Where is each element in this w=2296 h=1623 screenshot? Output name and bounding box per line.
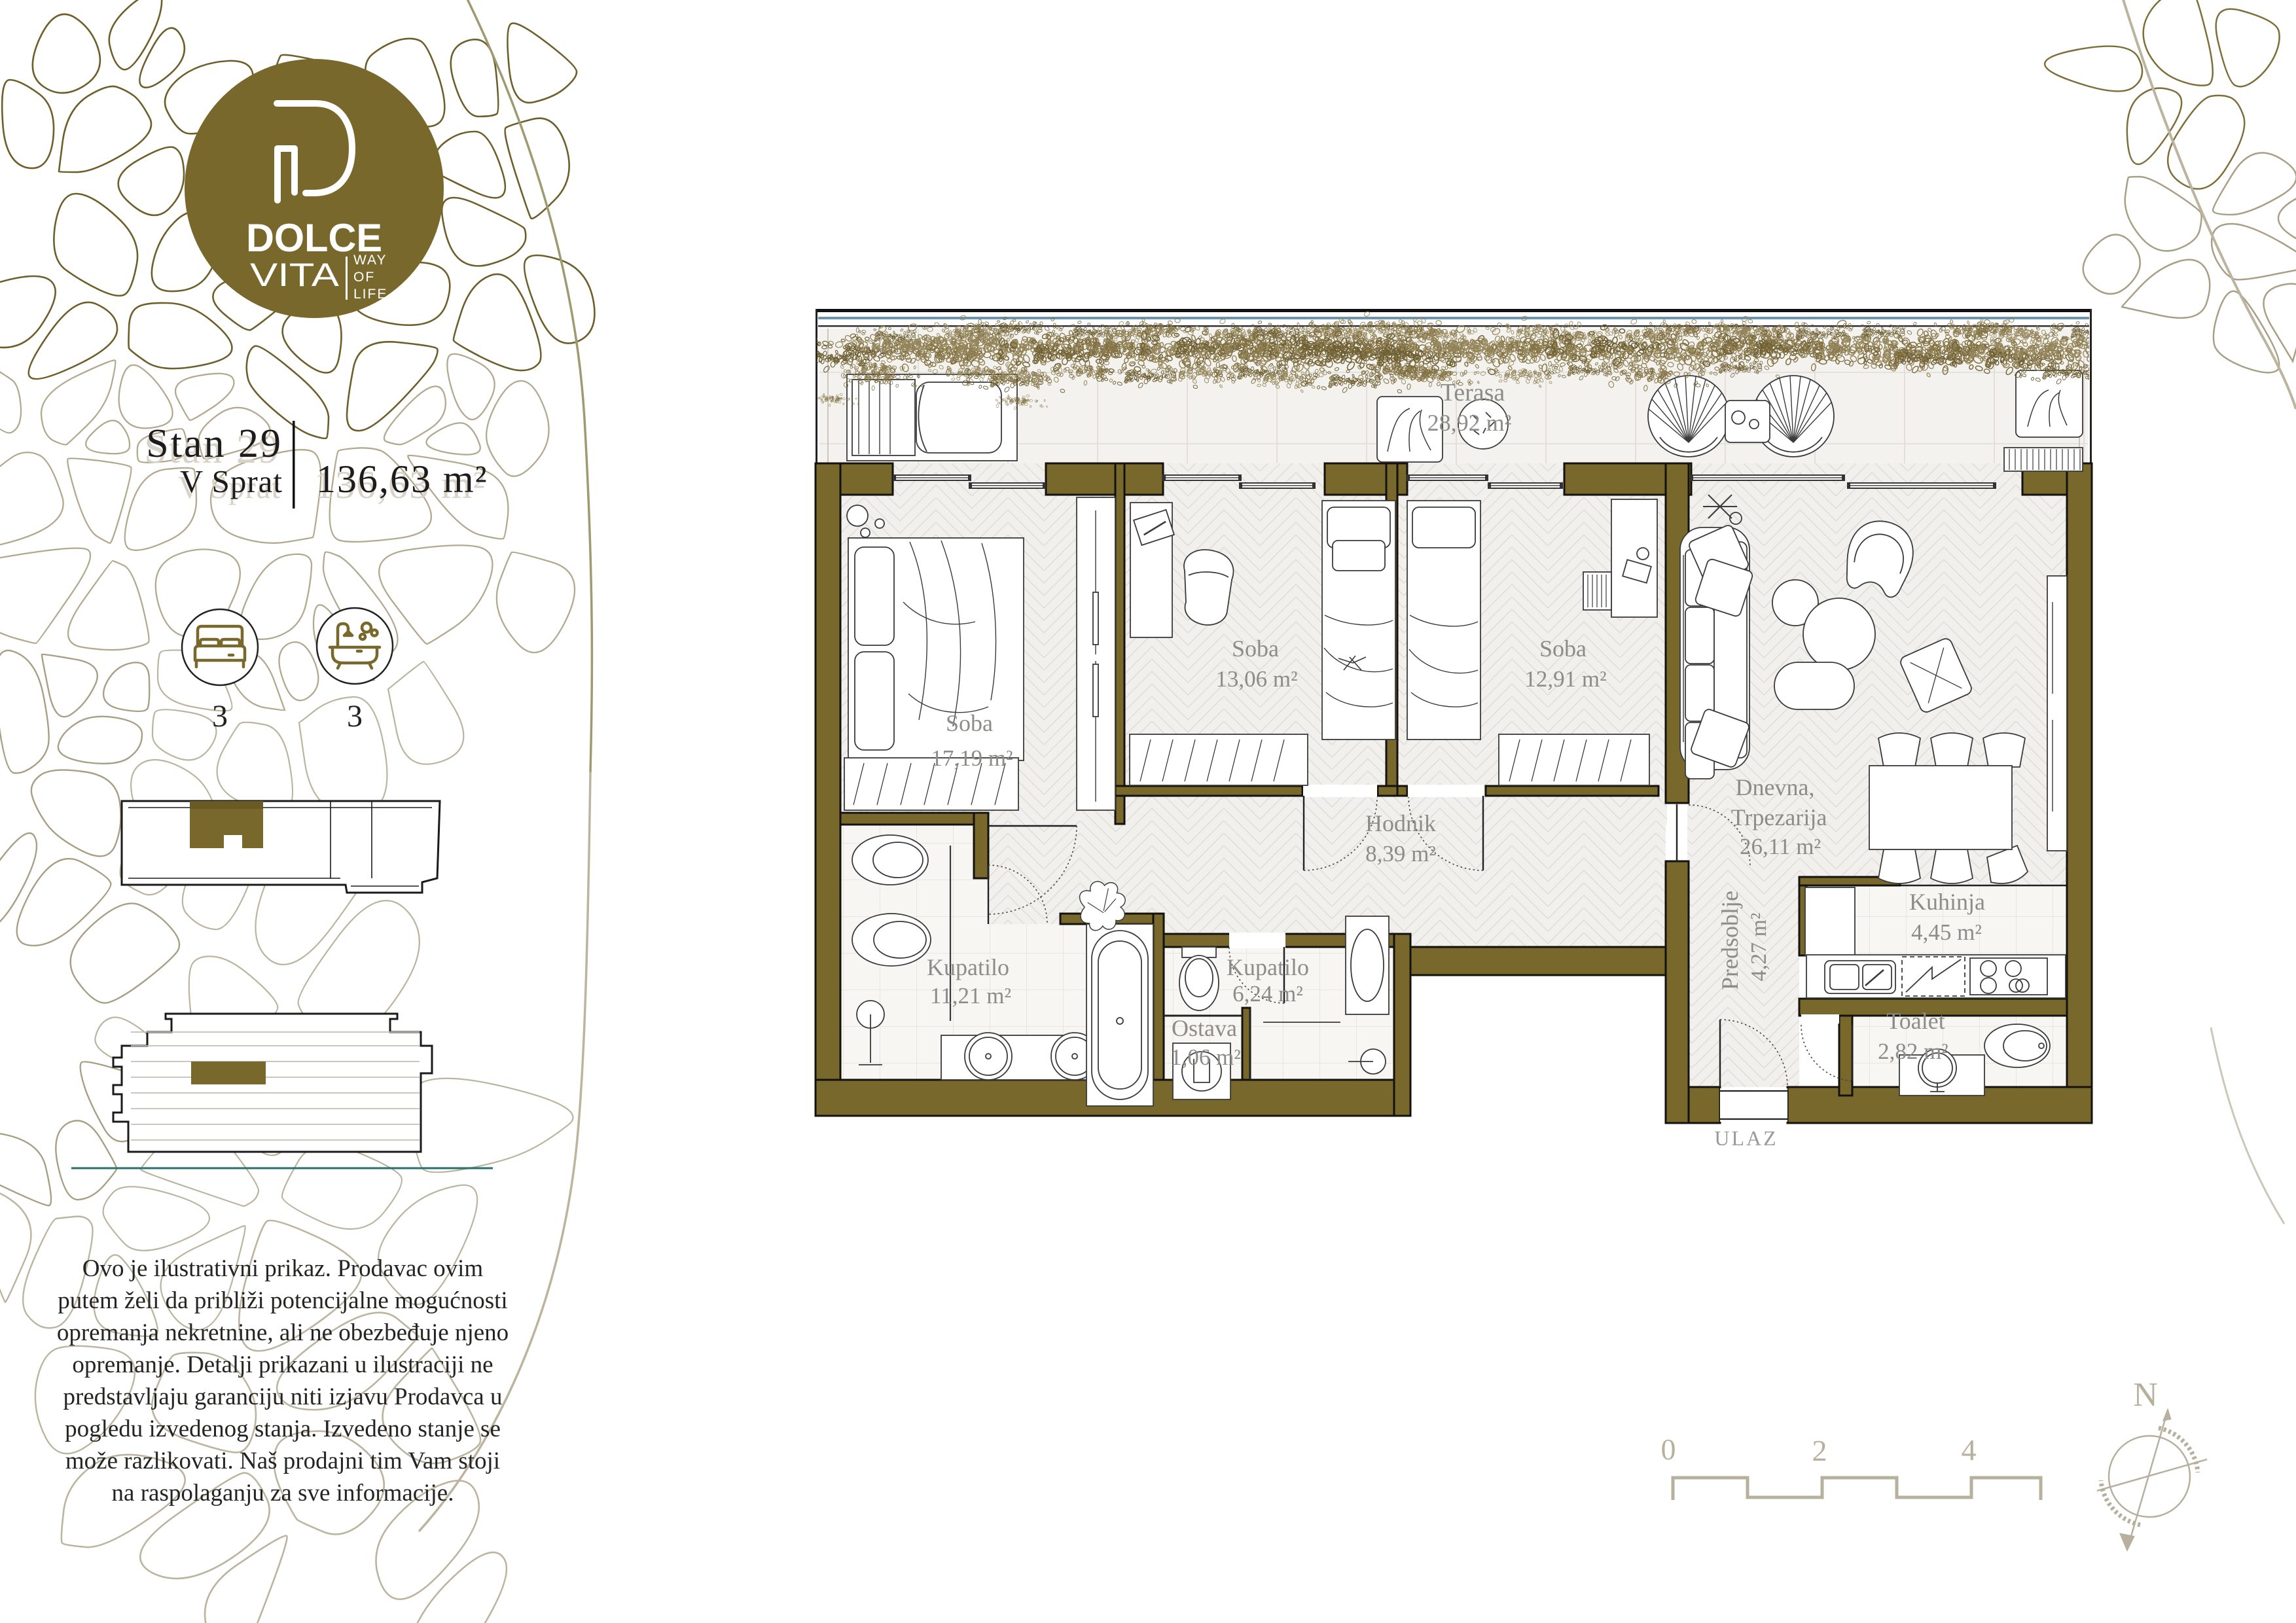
svg-text:Toalet: Toalet <box>1886 1008 1945 1034</box>
svg-text:WAY: WAY <box>353 253 387 268</box>
svg-text:28,92 m²: 28,92 m² <box>1427 410 1512 436</box>
svg-text:3: 3 <box>212 699 228 734</box>
svg-text:6,24 m²: 6,24 m² <box>1232 981 1303 1007</box>
svg-text:Hodnik: Hodnik <box>1365 810 1436 836</box>
svg-text:Predsoblje: Predsoblje <box>1717 891 1743 990</box>
svg-text:4,27 m²: 4,27 m² <box>1747 913 1771 982</box>
svg-text:Trpezarija: Trpezarija <box>1731 804 1827 830</box>
svg-text:opremanje. Detalji prikazani u: opremanje. Detalji prikazani u ilustraci… <box>72 1351 493 1378</box>
svg-text:može razlikovati. Naš prodajni: može razlikovati. Naš prodajni tim Vam s… <box>65 1448 500 1474</box>
svg-text:8,39 m²: 8,39 m² <box>1365 841 1436 866</box>
svg-text:ULAZ: ULAZ <box>1714 1126 1778 1150</box>
svg-text:putem želi da približi potenci: putem želi da približi potencijalne mogu… <box>58 1287 507 1314</box>
svg-text:Kupatilo: Kupatilo <box>1227 954 1309 980</box>
svg-text:Kuhinja: Kuhinja <box>1909 889 1985 915</box>
svg-text:17,19 m²: 17,19 m² <box>931 745 1013 771</box>
svg-text:4,45 m²: 4,45 m² <box>1911 919 1982 945</box>
svg-text:LIFE: LIFE <box>353 287 387 302</box>
svg-text:3: 3 <box>347 699 363 734</box>
svg-text:Ostava: Ostava <box>1172 1015 1237 1041</box>
svg-text:opremanja nekretnine, ali ne o: opremanja nekretnine, ali ne obezbeđuje … <box>57 1319 509 1346</box>
svg-text:Stan 29: Stan 29 <box>146 421 283 466</box>
svg-text:12,91 m²: 12,91 m² <box>1524 666 1606 692</box>
svg-text:Soba: Soba <box>1539 635 1587 662</box>
svg-text:na raspolaganju za sve informa: na raspolaganju za sve informacije. <box>112 1480 454 1507</box>
svg-text:136,63 m²: 136,63 m² <box>316 457 488 501</box>
svg-text:predstavljaju garanciju niti i: predstavljaju garanciju niti izjavu Prod… <box>63 1383 503 1410</box>
svg-text:N: N <box>2133 1376 2158 1414</box>
svg-text:13,06 m²: 13,06 m² <box>1215 666 1297 692</box>
svg-text:4: 4 <box>1962 1433 1977 1467</box>
svg-text:2: 2 <box>1812 1434 1827 1467</box>
svg-text:0: 0 <box>1661 1433 1676 1466</box>
svg-text:V Sprat: V Sprat <box>180 463 283 499</box>
svg-text:Soba: Soba <box>946 710 993 736</box>
svg-text:Dnevna,: Dnevna, <box>1736 774 1815 800</box>
svg-text:26,11 m²: 26,11 m² <box>1740 834 1821 859</box>
svg-text:2,82 m²: 2,82 m² <box>1878 1039 1948 1064</box>
svg-text:pogledu izvedenog stanja. Izve: pogledu izvedenog stanja. Izvedeno stanj… <box>65 1416 501 1442</box>
svg-text:Kupatilo: Kupatilo <box>927 954 1009 980</box>
svg-text:VITA: VITA <box>250 257 340 293</box>
svg-text:1,06 m²: 1,06 m² <box>1170 1044 1241 1070</box>
svg-text:11,21 m²: 11,21 m² <box>930 983 1011 1008</box>
svg-text:Ovo je ilustrativni prikaz. Pr: Ovo je ilustrativni prikaz. Prodavac ovi… <box>82 1255 484 1282</box>
svg-text:Soba: Soba <box>1232 635 1279 662</box>
svg-text:OF: OF <box>353 270 375 285</box>
